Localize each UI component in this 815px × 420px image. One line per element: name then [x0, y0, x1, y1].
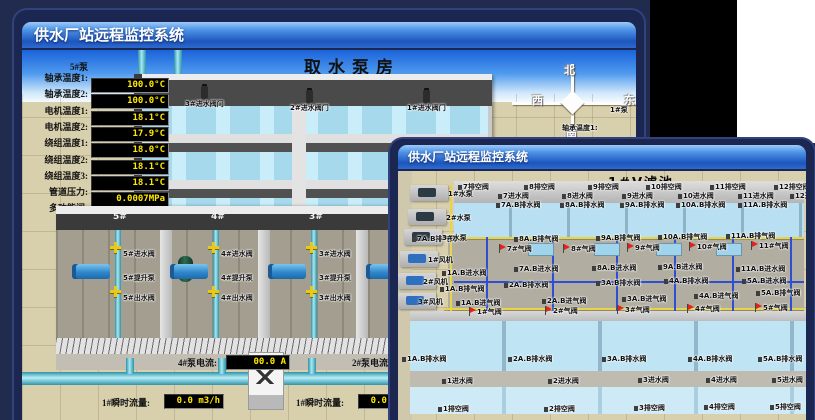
- valve-alarm-flag-icon[interactable]: [756, 303, 762, 309]
- valve-alarm-flag-icon[interactable]: [546, 306, 552, 312]
- readout-label: 电机温度2:: [24, 121, 88, 134]
- readout-label: 管道压力:: [24, 186, 88, 199]
- valve-label: 9A.B进水阀: [658, 263, 702, 271]
- valve-label: 11A.B排水阀: [738, 201, 787, 209]
- valve-label: 3#出水阀: [319, 294, 351, 302]
- readout-label: 轴承温度1:: [24, 72, 88, 85]
- valve-label: 3#进水阀: [319, 250, 351, 258]
- filter-pool-scene: 1#V滤池: [398, 171, 806, 420]
- valve-icon[interactable]: [423, 90, 430, 103]
- building-divider: [292, 106, 306, 220]
- valve-label: 11进水阀: [738, 192, 774, 200]
- valve-label: 3A.B排水阀: [602, 355, 646, 363]
- valve-label: 2A.B进气阀: [542, 297, 586, 305]
- valve-label: 1A.B进水阀: [442, 269, 486, 277]
- valve-label: 1排空阀: [438, 405, 469, 413]
- valve-label: 9A.B排气阀: [596, 234, 640, 242]
- valve-label: 5#出水阀: [123, 294, 155, 302]
- front-window-titlebar[interactable]: 供水厂站远程监控系统: [398, 145, 806, 169]
- pipe-stub: [218, 358, 226, 374]
- compass-center: [560, 90, 584, 114]
- equipment-label: 2#风机: [423, 277, 448, 287]
- valve-label: 4进水阀: [706, 376, 737, 384]
- equipment-label: 3#水泵: [442, 233, 467, 243]
- desktop: 供水厂站远程监控系统 取水泵房: [0, 0, 815, 420]
- valve-label: 5进水阀: [772, 376, 803, 384]
- valve-label: 2排空阀: [544, 405, 575, 413]
- readout-row: 绕组温度3:18.1°C: [24, 170, 169, 183]
- valve-label: 8A.B排水阀: [560, 201, 604, 209]
- valve-alarm-flag-icon[interactable]: [752, 241, 758, 247]
- desktop-black-area: [650, 0, 737, 140]
- bay-number: 4#: [211, 212, 225, 222]
- fan-icon: [406, 276, 424, 285]
- current-label: 2#泵电流:: [352, 356, 391, 369]
- valve-icon[interactable]: [306, 90, 313, 103]
- pump-room-pillar: [258, 230, 270, 338]
- equipment-label: 2#水泵: [446, 213, 471, 223]
- equipment-label: 3#风机: [418, 297, 443, 307]
- readout-label: 绕组温度3:: [24, 170, 88, 183]
- equipment-label: 4#提升泵: [221, 274, 253, 282]
- flow-meter-valve-icon: [254, 370, 276, 384]
- pump-icon[interactable]: [268, 264, 306, 279]
- valve-icon[interactable]: [208, 242, 219, 253]
- valve-label: 1#进水阀门: [407, 104, 446, 112]
- readout-label: 1#泵: [610, 106, 628, 114]
- valve-alarm-flag-icon[interactable]: [688, 304, 694, 310]
- valve-label: 9A.B排水阀: [620, 201, 664, 209]
- bay-number: 5#: [113, 212, 127, 222]
- readout-label: 绕组温度2:: [24, 154, 88, 167]
- valve-label[interactable]: 11#气阀: [759, 242, 789, 250]
- valve-label: 11排空阀: [710, 183, 746, 191]
- valve-label: 5排空阀: [770, 403, 801, 411]
- valve-label: 7进水阀: [498, 192, 529, 200]
- readout-row: 电机温度1:18.1°C: [24, 105, 169, 118]
- current-label: 4#泵电流:: [178, 356, 217, 369]
- valve-label: 4A.B进气阀: [694, 292, 738, 300]
- pump-icon: [416, 212, 434, 221]
- pump-icon[interactable]: [72, 264, 110, 279]
- gallery-tank: [594, 243, 620, 256]
- valve-alarm-flag-icon[interactable]: [470, 307, 476, 313]
- valve-label: 8A.B进水阀: [592, 264, 636, 272]
- valve-label[interactable]: 5#气阀: [763, 304, 788, 312]
- valve-label: 5A.B排水阀: [758, 355, 802, 363]
- water-pipe: [790, 237, 792, 311]
- filter-cells-bottom: [410, 321, 806, 371]
- valve-alarm-flag-icon[interactable]: [690, 242, 696, 248]
- valve-label: 8排空阀: [524, 183, 555, 191]
- readout-row: 轴承温度1:100.0°C: [24, 72, 169, 85]
- pump-icon: [418, 188, 436, 197]
- valve-label: 3进水阀: [638, 376, 669, 384]
- fan-icon: [408, 254, 426, 263]
- valve-label: 7A.B进水阀: [514, 265, 558, 273]
- valve-label: 2进水阀: [548, 377, 579, 385]
- valve-icon[interactable]: [110, 242, 121, 253]
- pump-unit[interactable]: [410, 185, 448, 201]
- equipment-label: 1#风机: [428, 255, 453, 265]
- valve-icon[interactable]: [201, 86, 208, 99]
- compass-west: 西: [532, 92, 543, 108]
- valve-alarm-flag-icon[interactable]: [564, 244, 570, 250]
- valve-label: 5#进水阀: [123, 250, 155, 258]
- valve-label: 4排空阀: [704, 403, 735, 411]
- valve-label[interactable]: 7#气阀: [507, 245, 532, 253]
- desktop-white-corner: [737, 0, 815, 143]
- valve-label: 8A.B排气阀: [514, 235, 558, 243]
- valve-icon[interactable]: [208, 286, 219, 297]
- valve-label: 2#进水阀门: [290, 104, 329, 112]
- pipe-stub: [126, 358, 134, 374]
- valve-label: 3#进水阀门: [185, 100, 224, 108]
- flow-meter-base: [249, 395, 283, 409]
- valve-label: 4#进水阀: [221, 250, 253, 258]
- readout-label: 电机温度1:: [24, 105, 88, 118]
- valve-label: 1A.B排水阀: [402, 355, 446, 363]
- flow-label: 1#瞬时流量:: [296, 396, 344, 409]
- readout-row: 管道压力:0.0007MPa: [24, 186, 169, 199]
- valve-label[interactable]: 4#气阀: [695, 305, 720, 313]
- led-value: 00.0 A: [226, 355, 290, 370]
- equipment-label: 3#提升泵: [319, 274, 351, 282]
- pump-icon[interactable]: [170, 264, 208, 279]
- valve-label: 1A.B进气阀: [456, 299, 500, 307]
- valve-alarm-flag-icon[interactable]: [628, 243, 634, 249]
- valve-label: 5A.B进水阀: [742, 277, 786, 285]
- valve-icon[interactable]: [110, 286, 121, 297]
- valve-label: 8进水阀: [562, 192, 593, 200]
- valve-label: 2A.B排水阀: [508, 355, 552, 363]
- pump-room-pillar: [356, 230, 368, 338]
- readout-row: 电机温度2:17.9°C: [24, 121, 169, 134]
- valve-alarm-flag-icon[interactable]: [618, 305, 624, 311]
- valve-label: 12排空阀: [774, 183, 806, 191]
- valve-label: 10A.B排水阀: [676, 201, 725, 209]
- valve-label: 2A.B排水阀: [504, 281, 548, 289]
- valve-label[interactable]: 8#气阀: [571, 245, 596, 253]
- readout-label: 轴承温度2:: [24, 88, 88, 101]
- valve-label: 4#出水阀: [221, 294, 253, 302]
- equipment-label: 5#提升泵: [123, 274, 155, 282]
- valve-label: 10A.B排气阀: [658, 233, 707, 241]
- bay-number: 3#: [309, 212, 323, 222]
- valve-alarm-flag-icon[interactable]: [500, 244, 506, 250]
- valve-label: 3A.B排水阀: [596, 279, 640, 287]
- valve-label[interactable]: 10#气阀: [697, 243, 727, 251]
- valve-label: 3A.B进气阀: [622, 295, 666, 303]
- valve-icon[interactable]: [306, 286, 317, 297]
- readout-label: 轴承温度1:: [562, 124, 598, 132]
- valve-label: 11A.B进水阀: [736, 265, 785, 273]
- valve-label[interactable]: 9#气阀: [635, 244, 660, 252]
- readout-row: 轴承温度2:100.0°C: [24, 88, 169, 101]
- pump-room-pillar: [160, 230, 172, 338]
- valve-label[interactable]: 2#气阀: [553, 307, 578, 315]
- valve-label: 7A.B排水阀: [496, 201, 540, 209]
- window-filter-pool: 供水厂站远程监控系统 1#V滤池: [388, 137, 815, 420]
- compass-north: 北: [564, 62, 575, 78]
- pump-unit[interactable]: [408, 209, 446, 225]
- valve-label: 9进水阀: [622, 192, 653, 200]
- pipe-stub: [308, 358, 316, 374]
- valve-label: 11A.B排气阀: [726, 232, 775, 240]
- valve-label: 3排空阀: [634, 404, 665, 412]
- valve-label: 9排空阀: [588, 183, 619, 191]
- flow-label: 1#瞬时流量:: [102, 396, 150, 409]
- readout-row: 绕组温度2:18.1°C: [24, 154, 169, 167]
- valve-label: 10进水阀: [678, 192, 714, 200]
- valve-label: 4A.B排水阀: [664, 277, 708, 285]
- valve-label: 4A.B排水阀: [688, 355, 732, 363]
- valve-label: 5A.B排气阀: [756, 289, 800, 297]
- led-value: 0.0 m3/h: [164, 394, 224, 409]
- valve-label: 1进水阀: [442, 377, 473, 385]
- valve-label[interactable]: 1#气阀: [477, 308, 502, 316]
- readout-label: 绕组温度1:: [24, 137, 88, 150]
- back-window-titlebar[interactable]: 供水厂站远程监控系统: [22, 22, 636, 48]
- equipment-label: 1#水泵: [448, 189, 473, 199]
- valve-label: 12进水阀: [790, 192, 806, 200]
- valve-label[interactable]: 3#气阀: [625, 306, 650, 314]
- clean-water-channel: [410, 387, 806, 414]
- valve-icon[interactable]: [306, 242, 317, 253]
- readout-row: 绕组温度1:18.0°C: [24, 137, 169, 150]
- valve-label: 10排空阀: [646, 183, 682, 191]
